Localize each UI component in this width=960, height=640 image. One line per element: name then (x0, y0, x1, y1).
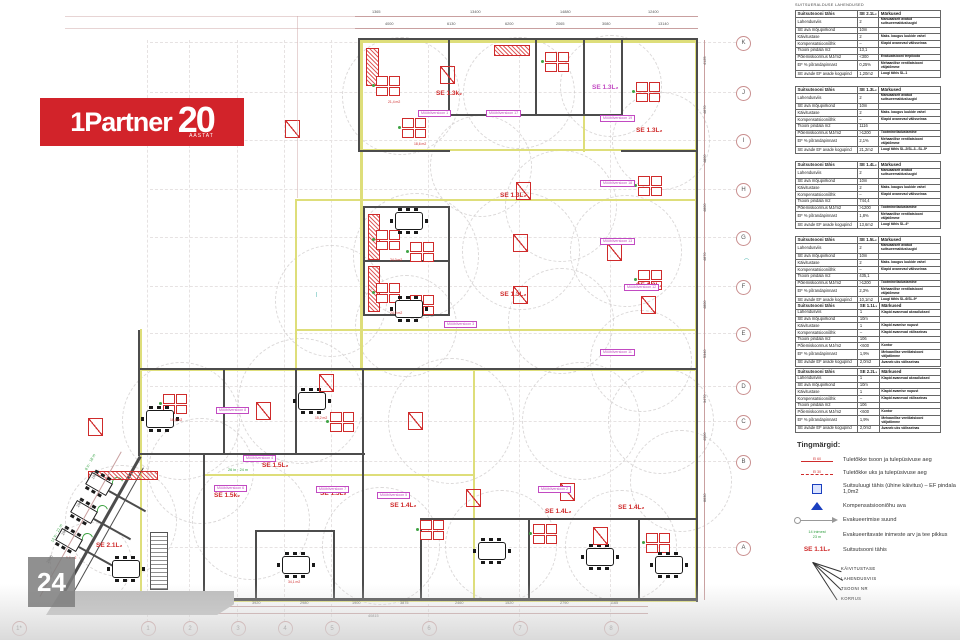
table-row-label: Lahendusviis (796, 243, 858, 253)
table-row-remark: Mehaanilise ventilatsiooni väljatõmme (879, 287, 941, 297)
smoke-hatch (641, 296, 656, 314)
grid-bubble: 3 (231, 621, 246, 636)
chair (285, 575, 289, 578)
chair (301, 388, 305, 391)
desk (423, 253, 435, 263)
desk (389, 87, 401, 97)
table-row-remark: Märkused (879, 162, 941, 169)
grid-bubble: F (736, 280, 751, 295)
grid-bubble: 8 (604, 621, 619, 636)
table-row-remark (879, 47, 941, 54)
chair (666, 575, 670, 578)
desk (649, 82, 661, 92)
table-row-remark: Mehaanilise ventilatsiooni väljatõmme (879, 416, 940, 426)
table-row: Tsooni pindala m2106 (796, 336, 941, 343)
table-row: Suitsutsooni tähisSE 2.1L₂Märkused (796, 11, 941, 18)
wall (295, 368, 297, 455)
dimension-text: 3080 (602, 22, 610, 26)
desk (410, 242, 422, 252)
dimension-text: 2065 (556, 22, 564, 26)
table-row-value: 2,0m2 (858, 425, 880, 432)
wall (621, 38, 623, 116)
chair (674, 575, 678, 578)
table-row-remark: Märkused (879, 237, 941, 244)
chair (293, 552, 297, 555)
chair (658, 552, 662, 555)
legend: Tingmärgid: EI 60Tuletõkke tsoon ja tule… (797, 440, 957, 608)
table-row: EF % põrandapinnast2,3%Mehaanilise venti… (796, 287, 941, 297)
table-row-value: 1 (858, 375, 880, 382)
zone-data-table: Suitsutsooni tähisSE 1.4L₂MärkusedLahend… (795, 161, 941, 229)
table-row: Lahendusviis1Klapid avanevad aknad/uksed (796, 375, 941, 382)
furniture-version-label: Mööbliversioon 1 (418, 110, 451, 117)
smoke-hatch (319, 374, 334, 392)
chair (589, 567, 593, 570)
table-row-label: Suitsutsooni tähis (796, 87, 858, 94)
green-text-icon: 14 inimest 23 m (797, 530, 837, 539)
zone-data-table: Suitsutsooni tähisSE 2.2L₁MärkusedLahend… (795, 368, 941, 433)
chair (414, 296, 418, 299)
table-row-label: Tsooni pindala m2 (796, 273, 858, 280)
chair (309, 388, 313, 391)
table-row: Tsooni pindala m213,1 (796, 47, 941, 54)
dimension-text: 4870 (703, 253, 707, 261)
table-row: Kompensatsiooniõhk–Klapid avanevad välis… (796, 267, 941, 274)
smoke-hatch (607, 243, 622, 261)
legend-item-label: Suitsuluugi tähis (ühine käivitus) – EF … (843, 483, 957, 495)
chair (406, 231, 410, 234)
chair (149, 406, 153, 409)
callout-text: LAHENDUSVIIS (841, 576, 877, 581)
evacuation-info-label: 8 in · 18 m (84, 453, 96, 471)
dimension-line (297, 16, 298, 198)
desk (330, 412, 342, 422)
table-row-remark: Märkused (879, 369, 940, 376)
table-row: SE avade EF avade kogupind2,0m2Avaneb uk… (796, 425, 941, 432)
furniture-version-label: Mööbliversioon 12 (624, 284, 659, 291)
partner-logo: 1Partner 20 AASTAT (40, 98, 244, 146)
dimension-text: 4000 (385, 22, 393, 26)
desk-cluster (410, 242, 434, 262)
table-row-label: EF % põrandapinnast (796, 287, 858, 297)
table-row-value: 1,20m2 (857, 71, 879, 78)
table-row-value: <600 (858, 409, 880, 416)
chair (301, 411, 305, 414)
table-row-label: Tsooni pindala m2 (796, 123, 858, 130)
dimension-text: 13140 (658, 22, 669, 26)
table-row-remark (879, 198, 941, 205)
table-row-value: SE 1.5L₂ (857, 237, 879, 244)
grid-bubble: 6 (422, 621, 437, 636)
dimension-text: 4800 (703, 301, 707, 309)
desk-cluster (376, 76, 400, 96)
chair (131, 579, 135, 582)
conference-table (395, 212, 423, 230)
table-row-remark: Tootmine/ladustamine (879, 280, 941, 287)
desk (636, 82, 648, 92)
table-row-value: 435,1 (857, 273, 879, 280)
dimension-total-text: 40815 (368, 614, 379, 618)
se-zone-label: SE 1.3L₂ (500, 291, 526, 298)
table-row-remark: Mehaanilise ventilatsiooni väljatõmme (879, 350, 940, 360)
table-row-value: 1,9% (858, 416, 880, 426)
chair (123, 556, 127, 559)
chair (328, 399, 331, 403)
desk (558, 63, 570, 73)
table-row-label: Suitsutsooni tähis (796, 369, 858, 376)
table-row-value: 2 (857, 260, 879, 267)
chair (414, 208, 418, 211)
conference-table (478, 542, 506, 560)
desk-cluster (545, 52, 569, 72)
desk (410, 253, 422, 263)
chair (406, 296, 410, 299)
dimension-text: 6130 (447, 22, 455, 26)
chair (489, 561, 493, 564)
chair (293, 575, 297, 578)
desk-cluster (646, 533, 670, 553)
grid-bubble: 1 (141, 621, 156, 636)
table-row-value: 21,2m2 (857, 147, 879, 154)
legend-item: 14 inimest 23 mEvakueeritavate inimeste … (797, 530, 957, 539)
room-area-label: 24,0 m2 (390, 311, 402, 315)
table-row-remark: Luugi tähis SL-4* (879, 222, 941, 229)
table-row-remark: Maks. kaugus luukide vahel (879, 34, 941, 41)
table-row-value: 106 (858, 402, 880, 409)
logo-aastat-text: AASTAT (189, 134, 214, 138)
callout-text: KORRUS (841, 596, 861, 601)
grid-bubble: G (736, 231, 751, 246)
table-row-value: <600 (858, 343, 880, 350)
chair (165, 429, 169, 432)
table-row-label: SE ava mõjupiirkond (796, 382, 858, 389)
smoke-zone-line (360, 40, 697, 43)
table-row-value: SE 2.2L₁ (858, 369, 880, 376)
table-row-label: Käivitustase (796, 323, 858, 330)
dimension-text: 4000 (703, 433, 707, 441)
table-row-remark: Klapid avanevad välisseinas (879, 396, 940, 403)
desk (415, 129, 427, 139)
chair (489, 538, 493, 541)
table-row-value: – (857, 267, 879, 274)
table-row-label: Käivitustase (796, 260, 858, 267)
chair (425, 307, 428, 311)
table-row-remark: Maks. kaugus luukide vahel (879, 260, 941, 267)
coverage-circle (322, 487, 440, 605)
table-row: Kompensatsiooniõhk–Klapid avanevad välis… (796, 192, 941, 199)
wall (638, 518, 640, 600)
chair (149, 429, 153, 432)
table-row-remark: Luugi tähis SL-1 (879, 71, 941, 78)
callout-text: TSOONI NR (841, 586, 868, 591)
desk-cluster (638, 176, 662, 196)
furniture-version-label: Mööbliversioon 7 (316, 486, 349, 493)
dimension-line (355, 28, 698, 29)
table-row-label: Põlemiskoormus MJ/m2 (796, 205, 858, 212)
furniture-version-label: Mööbliversioon 19 (600, 115, 635, 122)
desk (376, 283, 388, 293)
grid-bubble: D (736, 380, 751, 395)
legend-item-label: Evakueerimise suund (843, 517, 896, 523)
grid-bubble: 1* (12, 621, 27, 636)
table-row: Kompensatsiooniõhk–Klapid avanevad välis… (796, 330, 941, 337)
table-row: Käivitustase2Maks. kaugus luukide vahel (796, 110, 941, 117)
panel-title: SUITSUERALDUSE LAHENDUSED (795, 3, 864, 7)
smoke-hatch (408, 412, 423, 430)
desk (343, 423, 355, 433)
table-row: EF % põrandapinnast2,1%Mehaanilise venti… (796, 137, 941, 147)
table-row-remark: Evakuatsiooni trepikoda (879, 54, 941, 61)
table-row-remark: Märkused (879, 11, 941, 18)
wall (358, 150, 450, 152)
dimension-text: 4125 (703, 57, 707, 65)
dimension-line (65, 28, 355, 29)
room-area-label: 24,0 m2 (390, 258, 402, 262)
desk (649, 93, 661, 103)
evacuation-arrow-symbol (800, 520, 834, 521)
table-row-value: – (857, 117, 879, 124)
table-row: SE ava mõjupiirkond10m (796, 27, 941, 34)
floorplan-canvas: SE 1.3k₂SE 1.3L₂SE 1.3L₂SE 1.3L₂SE 1.3L₂… (0, 0, 960, 640)
desk (545, 63, 557, 73)
evacuation-info-label: 26 in · 24 m (228, 468, 248, 472)
table-row-remark: Manuaalselt avatud suitsueemaldusluugid (879, 243, 941, 253)
chair (115, 556, 119, 559)
legend-item-label: Tuletõkke tsoon ja tulepüsivuse aeg (843, 457, 932, 463)
table-row-value: 2,3% (857, 287, 879, 297)
table-row-value: 10m (857, 253, 879, 260)
table-row-remark (879, 27, 941, 34)
desk (423, 295, 435, 305)
wall (333, 530, 335, 600)
legend-item: EI 30Tuletõkke uks ja tulepüsivuse aeg (797, 470, 957, 476)
table-row-remark: Maks. kaugus luukide vahel (879, 185, 941, 192)
chair (390, 219, 393, 223)
table-row-value: 2 (857, 17, 879, 27)
table-row: Suitsutsooni tähisSE 2.2L₁Märkused (796, 369, 941, 376)
room-area-label: 21,4 m2 (388, 100, 400, 104)
smoke-hatch (593, 527, 608, 545)
table-row-label: Suitsutsooni tähis (796, 162, 858, 169)
vent-mark: | (316, 292, 317, 298)
desk (636, 93, 648, 103)
table-row: SE ava mõjupiirkond10m (796, 178, 941, 185)
chair (658, 575, 662, 578)
chair (115, 579, 119, 582)
dimension-text: 1165 (610, 601, 618, 605)
chair (616, 555, 619, 559)
table-row: Käivitustase2Maks. kaugus luukide vahel (796, 260, 941, 267)
conference-table (112, 560, 140, 578)
table-row-label: Lahendusviis (796, 93, 858, 103)
table-row-remark (879, 253, 941, 260)
table-row-label: SE avade EF avade kogupind (796, 222, 858, 229)
table-row: EF % põrandapinnast1,9%Mehaanilise venti… (796, 350, 941, 360)
table-row-remark: Klapid avamise nupust (879, 323, 940, 330)
table-row: Kompensatsiooniõhk–Klapid avanevad välis… (796, 117, 941, 124)
legend-zone-callouts: KÄIVITUSTASELAHENDUSVIISTSOONI NRKORRUS (797, 556, 957, 608)
desk (651, 270, 663, 280)
se-zone-label: SE 1.4L₂ (390, 502, 416, 509)
dimension-text: 2460 (455, 601, 463, 605)
table-row-value: SE 1.4L₂ (857, 162, 879, 169)
furniture-version-label: Mööbliversioon 4 (243, 455, 276, 462)
table-row-label: Kompensatsiooniõhk (796, 330, 858, 337)
desk (402, 118, 414, 128)
se-label-icon: SE 1.1L₂ (797, 546, 837, 553)
table-row-value: 13,1 (857, 47, 879, 54)
table-row: Põlemiskoormus MJ/m2>1200Tootmine/ladust… (796, 130, 941, 137)
table-row-label: SE ava mõjupiirkond (796, 103, 858, 110)
chair (650, 563, 653, 567)
se-zone-label: SE 1.4L₂ (618, 504, 644, 511)
room-area-label: 34,1 m2 (288, 580, 300, 584)
wall (255, 530, 335, 532)
table-row-label: EF % põrandapinnast (796, 416, 858, 426)
fire-line-symbol (801, 461, 833, 462)
wall (621, 150, 698, 152)
furniture-version-label: Mööbliversioon 5 (377, 492, 410, 499)
grid-bubble: 4 (278, 621, 293, 636)
desk-cluster (533, 524, 557, 544)
table-row-value: 1,8% (857, 212, 879, 222)
table-row-remark (879, 402, 940, 409)
stairwell (150, 532, 168, 590)
dimension-text: 4800 (703, 204, 707, 212)
chair (406, 208, 410, 211)
vent-mark: ⌒ (744, 258, 749, 265)
wall (203, 454, 205, 600)
desk (646, 544, 658, 554)
wall (362, 370, 364, 600)
desk (415, 118, 427, 128)
line-dashed-icon: EI 30 (797, 471, 837, 475)
chair (497, 561, 501, 564)
desk-cluster (330, 412, 354, 432)
table-row-remark: Klapid avanevad aknad/uksed (879, 375, 940, 382)
table-row-remark: Kontor (879, 343, 940, 350)
table-row-value: SE 2.1L₂ (857, 11, 879, 18)
chair (398, 319, 402, 322)
table-row: SE avade EF avade kogupind21,2m2Luugi tä… (796, 147, 941, 154)
logo-brand-text: 1Partner (70, 107, 172, 138)
table-row-value: 2 (857, 93, 879, 103)
wall (530, 518, 640, 520)
table-row-value: 13,6m2 (857, 222, 879, 229)
table-row-remark: Manuaalselt avatud suitsueemaldusluugid (879, 93, 941, 103)
table-row: Lahendusviis2Manuaalselt avatud suitsuee… (796, 17, 941, 27)
dimension-text: 3920 (252, 601, 260, 605)
grid-bubble: I (736, 134, 751, 149)
table-row: Põlemiskoormus MJ/m2<300Evakuatsiooni tr… (796, 54, 941, 61)
chair (277, 563, 280, 567)
table-row-label: SE ava mõjupiirkond (796, 253, 858, 260)
chair (165, 406, 169, 409)
table-row-value: 0,25% (857, 61, 879, 71)
table-row-label: SE ava mõjupiirkond (796, 27, 858, 34)
table-row-label: Suitsutsooni tähis (796, 11, 858, 18)
table-row-value: 2,0m2 (858, 359, 880, 366)
smoke-hatch (513, 234, 528, 252)
wall (138, 368, 698, 370)
table-row-remark: Mehaanilise ventilatsiooni väljatõmme (879, 61, 941, 71)
desk (533, 524, 545, 534)
table-row: SE ava mõjupiirkond10m (796, 253, 941, 260)
dimension-text: 1365 (372, 10, 380, 14)
chair (123, 579, 127, 582)
room-area-label: 15,2 m2 (315, 416, 327, 420)
smoke-hatch (88, 418, 103, 436)
chair (301, 575, 305, 578)
dimension-text: 4870 (703, 106, 707, 114)
fire-line-symbol (801, 474, 833, 475)
desk (343, 412, 355, 422)
table-row-value: >1200 (857, 205, 879, 212)
table-row-label: Kompensatsiooniõhk (796, 396, 858, 403)
chair (398, 208, 402, 211)
table-row-value: – (858, 396, 880, 403)
chair (508, 549, 511, 553)
table-row-value: 1 (858, 389, 880, 396)
table-row-remark: Klapid avanevad välisseinas (879, 117, 941, 124)
table-row-label: Kompensatsiooniõhk (796, 41, 858, 48)
desk (651, 176, 663, 186)
desk (176, 405, 188, 415)
table-row-value: >1200 (857, 280, 879, 287)
desk-cluster (636, 82, 660, 102)
dimension-text: 2980 (300, 601, 308, 605)
table-row-value: <300 (857, 54, 879, 61)
chair (312, 563, 315, 567)
desk (376, 87, 388, 97)
table-row-value: 2,1% (857, 137, 879, 147)
desk (176, 394, 188, 404)
table-row: SE ava mõjupiirkond10m (796, 382, 941, 389)
wall (138, 330, 140, 456)
chair (131, 556, 135, 559)
table-row-value: – (857, 192, 879, 199)
chair (157, 429, 161, 432)
table-row: Käivitustase2Maks. kaugus luukide vahel (796, 185, 941, 192)
dimension-text: 14880 (560, 10, 571, 14)
table-row-label: Põlemiskoormus MJ/m2 (796, 409, 858, 416)
table-row: Põlemiskoormus MJ/m2<600Kontor (796, 409, 941, 416)
table-row-label: Lahendusviis (796, 168, 858, 178)
table-row-label: SE avade EF avade kogupind (796, 425, 858, 432)
table-row: Tsooni pindala m2435,1 (796, 273, 941, 280)
wall (358, 38, 360, 152)
desk (533, 535, 545, 545)
smoke-hatch (256, 402, 271, 420)
table-row-value: 1116 (857, 123, 879, 130)
wall (358, 38, 698, 40)
chair (141, 417, 144, 421)
table-row-label: EF % põrandapinnast (796, 137, 858, 147)
chair (597, 567, 601, 570)
dimension-text: 3875 (400, 601, 408, 605)
table-row-value: 1 (858, 323, 880, 330)
desk (420, 531, 432, 541)
desk-cluster (420, 520, 444, 540)
table-row-label: Kompensatsiooniõhk (796, 267, 858, 274)
table-row-value: – (857, 41, 879, 48)
smoke-zone-line (295, 199, 697, 201)
chair (285, 552, 289, 555)
table-row: Lahendusviis2Manuaalselt avatud suitsuee… (796, 243, 941, 253)
table-row-label: Tsooni pindala m2 (796, 47, 858, 54)
logo-anniversary: 20 AASTAT (178, 106, 214, 139)
dimension-text: 1520 (505, 601, 513, 605)
